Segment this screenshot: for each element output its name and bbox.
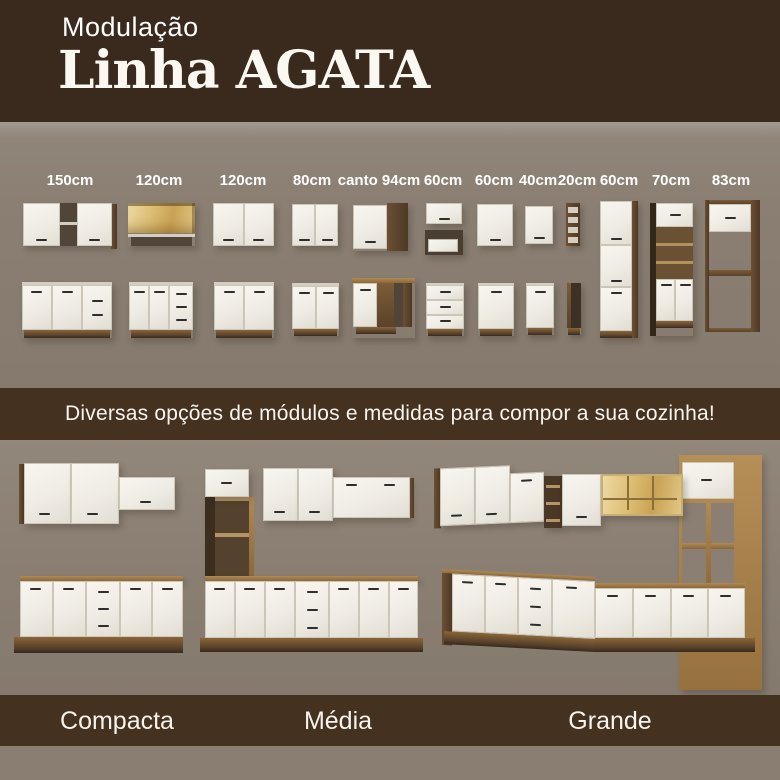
door bbox=[292, 204, 315, 246]
door bbox=[440, 467, 475, 527]
size-label-70: 70cm bbox=[652, 172, 690, 189]
handle bbox=[701, 479, 712, 481]
module-60cm-tall-pantry bbox=[600, 201, 638, 338]
handle bbox=[176, 306, 187, 308]
banner: Diversas opções de módulos e medidas par… bbox=[0, 388, 780, 440]
wood-door-open bbox=[377, 283, 394, 329]
door bbox=[244, 203, 274, 246]
module-80cm-upper bbox=[292, 204, 338, 246]
upper-run-left bbox=[440, 464, 544, 527]
door bbox=[562, 474, 601, 526]
door bbox=[477, 204, 513, 246]
wood-shelf bbox=[709, 270, 751, 276]
wood-panel bbox=[751, 200, 760, 332]
handle bbox=[521, 479, 532, 481]
module-60cmB-base bbox=[478, 283, 514, 336]
door bbox=[600, 245, 632, 287]
handle bbox=[36, 239, 47, 241]
handle bbox=[134, 291, 145, 293]
handle bbox=[89, 239, 100, 241]
door bbox=[600, 287, 632, 331]
door bbox=[552, 579, 595, 639]
base-run-right bbox=[595, 583, 745, 653]
wood-bottom bbox=[709, 328, 751, 332]
wood-edge bbox=[567, 283, 571, 328]
handle bbox=[611, 292, 622, 294]
handle bbox=[322, 239, 333, 241]
size-label-60b: 60cm bbox=[475, 172, 513, 189]
size-label-canto94: canto 94cm bbox=[338, 172, 421, 189]
door bbox=[600, 201, 632, 245]
handle bbox=[253, 239, 264, 241]
handle bbox=[530, 588, 541, 591]
module-120cmB-base bbox=[214, 282, 274, 338]
module-120cm-upper-glass bbox=[128, 203, 195, 246]
kitchen-label-compacta: Compacta bbox=[60, 707, 174, 736]
handle bbox=[490, 239, 501, 241]
plinth bbox=[656, 321, 693, 328]
plinth bbox=[528, 328, 552, 335]
door bbox=[709, 204, 751, 232]
open-oven-space bbox=[656, 227, 693, 279]
wood-panel bbox=[403, 283, 412, 327]
door bbox=[214, 285, 244, 330]
size-label-83: 83cm bbox=[712, 172, 750, 189]
size-label-80: 80cm bbox=[293, 172, 331, 189]
kitchen-label-media: Média bbox=[304, 707, 372, 736]
handle bbox=[576, 516, 587, 518]
module-60cmA-base-drawers bbox=[426, 283, 464, 336]
module-80cm-base bbox=[292, 283, 339, 336]
size-label-150: 150cm bbox=[47, 172, 94, 189]
door bbox=[475, 465, 510, 525]
door bbox=[23, 203, 60, 246]
door bbox=[52, 285, 82, 330]
module-60cmB-upper bbox=[477, 204, 513, 246]
handle bbox=[299, 239, 310, 241]
glass-door-gold bbox=[128, 203, 195, 233]
door bbox=[510, 472, 544, 523]
module-canto94-base bbox=[352, 278, 415, 338]
door bbox=[316, 286, 339, 329]
size-label-120b: 120cm bbox=[220, 172, 267, 189]
handle bbox=[440, 306, 451, 308]
wood-panel bbox=[632, 201, 638, 338]
handle bbox=[495, 583, 506, 586]
door bbox=[525, 206, 553, 244]
open-corner bbox=[394, 283, 403, 327]
handle bbox=[439, 218, 450, 220]
handle bbox=[534, 237, 545, 239]
handle bbox=[670, 214, 681, 216]
door bbox=[353, 283, 377, 327]
handle bbox=[530, 606, 541, 609]
module-40cm-upper bbox=[525, 206, 553, 244]
door bbox=[77, 203, 112, 246]
open-cubbies bbox=[682, 503, 734, 593]
corner-shelves bbox=[544, 476, 562, 528]
handle bbox=[92, 314, 103, 316]
handle bbox=[176, 319, 187, 321]
kitchen-label-grande: Grande bbox=[568, 707, 651, 736]
module-120cm-base bbox=[129, 282, 193, 338]
module-150cm-base bbox=[22, 282, 112, 338]
kitchen-grande bbox=[0, 440, 780, 695]
door bbox=[129, 285, 149, 330]
door bbox=[633, 588, 671, 638]
handle bbox=[223, 239, 234, 241]
door bbox=[708, 588, 745, 638]
door bbox=[526, 285, 554, 328]
handle bbox=[62, 291, 73, 293]
door bbox=[485, 575, 518, 635]
module-120cmB-upper bbox=[213, 203, 274, 246]
wood-corner-panel bbox=[387, 203, 408, 251]
module-60cmA-upper-niche bbox=[425, 230, 463, 255]
door bbox=[671, 588, 708, 638]
handle bbox=[607, 595, 618, 597]
door bbox=[315, 204, 338, 246]
poster: Modulação Linha AGATA 150cm 120cm 120cm … bbox=[0, 0, 780, 780]
handle bbox=[154, 291, 165, 293]
kitchens-section bbox=[0, 440, 780, 695]
drawer-stack bbox=[518, 577, 552, 637]
header-kicker: Modulação bbox=[62, 12, 199, 43]
door bbox=[656, 279, 675, 321]
handle bbox=[323, 292, 334, 294]
plinth bbox=[480, 329, 512, 336]
door bbox=[675, 279, 693, 321]
open-shelf bbox=[60, 203, 77, 246]
module-40cm-base bbox=[526, 283, 554, 335]
handle bbox=[224, 291, 235, 293]
drawer bbox=[426, 315, 464, 329]
door bbox=[292, 286, 316, 329]
plinth bbox=[600, 331, 632, 338]
handle bbox=[486, 513, 497, 515]
handle bbox=[720, 595, 731, 597]
size-label-40: 40cm bbox=[519, 172, 557, 189]
plinth bbox=[356, 327, 396, 334]
handle bbox=[491, 291, 502, 293]
handle bbox=[530, 624, 541, 627]
handle bbox=[254, 291, 265, 293]
handle bbox=[611, 280, 622, 282]
plinth bbox=[216, 330, 272, 338]
base-run-left bbox=[442, 569, 595, 657]
handle bbox=[440, 320, 451, 322]
size-label-60a: 60cm bbox=[424, 172, 462, 189]
door bbox=[478, 285, 514, 329]
handle bbox=[365, 241, 376, 243]
size-label-120a: 120cm bbox=[136, 172, 183, 189]
niche-shelf bbox=[428, 239, 458, 252]
handle bbox=[645, 595, 656, 597]
module-83cm-fridge-surround bbox=[705, 200, 760, 332]
banner-text: Diversas opções de módulos e medidas par… bbox=[65, 402, 715, 426]
plinth bbox=[568, 328, 580, 335]
handle bbox=[299, 292, 310, 294]
handle bbox=[680, 284, 691, 286]
glass-cabinet-gold bbox=[601, 474, 683, 516]
door bbox=[452, 574, 485, 634]
handle bbox=[725, 217, 736, 219]
drawer bbox=[426, 300, 464, 315]
handle bbox=[176, 293, 187, 295]
drawer-stack bbox=[82, 285, 112, 330]
module-canto94-upper bbox=[353, 203, 408, 251]
drawer-stack bbox=[169, 285, 193, 330]
module-20cm-base bbox=[567, 283, 581, 335]
door bbox=[682, 462, 734, 499]
door bbox=[22, 285, 52, 330]
drawer bbox=[426, 285, 464, 300]
plinth bbox=[24, 330, 110, 338]
door bbox=[353, 205, 387, 249]
handle bbox=[683, 595, 694, 597]
door bbox=[595, 588, 633, 638]
handle bbox=[440, 291, 451, 293]
plinth bbox=[595, 638, 755, 652]
door bbox=[656, 203, 693, 227]
module-150cm-upper bbox=[23, 203, 112, 246]
tall-wood-column bbox=[679, 455, 762, 690]
handle bbox=[462, 581, 473, 584]
handle bbox=[360, 289, 371, 291]
plinth bbox=[428, 329, 462, 336]
handle bbox=[611, 238, 622, 240]
door bbox=[149, 285, 169, 330]
modules-section: 150cm 120cm 120cm 80cm canto 94cm 60cm 6… bbox=[0, 122, 780, 388]
handle bbox=[661, 284, 672, 286]
handle bbox=[535, 291, 546, 293]
plinth bbox=[294, 329, 337, 336]
header-band: Modulação Linha AGATA bbox=[0, 0, 780, 122]
plinth bbox=[131, 330, 191, 338]
handle bbox=[31, 291, 42, 293]
handle bbox=[451, 514, 462, 516]
door bbox=[213, 203, 244, 246]
module-70cm-tower bbox=[650, 203, 693, 336]
size-label-20: 20cm bbox=[558, 172, 596, 189]
footer-band: Compacta Média Grande bbox=[0, 695, 780, 746]
footer-strip bbox=[0, 746, 780, 780]
size-label-60tall: 60cm bbox=[600, 172, 638, 189]
handle bbox=[92, 300, 103, 302]
door bbox=[244, 285, 274, 330]
module-20cm-upper-shelves bbox=[566, 203, 580, 246]
open-shelf bbox=[131, 237, 192, 246]
module-60cmA-upper-door bbox=[426, 203, 462, 224]
door bbox=[426, 203, 462, 224]
handle bbox=[566, 586, 577, 589]
page-title: Linha AGATA bbox=[58, 40, 429, 101]
